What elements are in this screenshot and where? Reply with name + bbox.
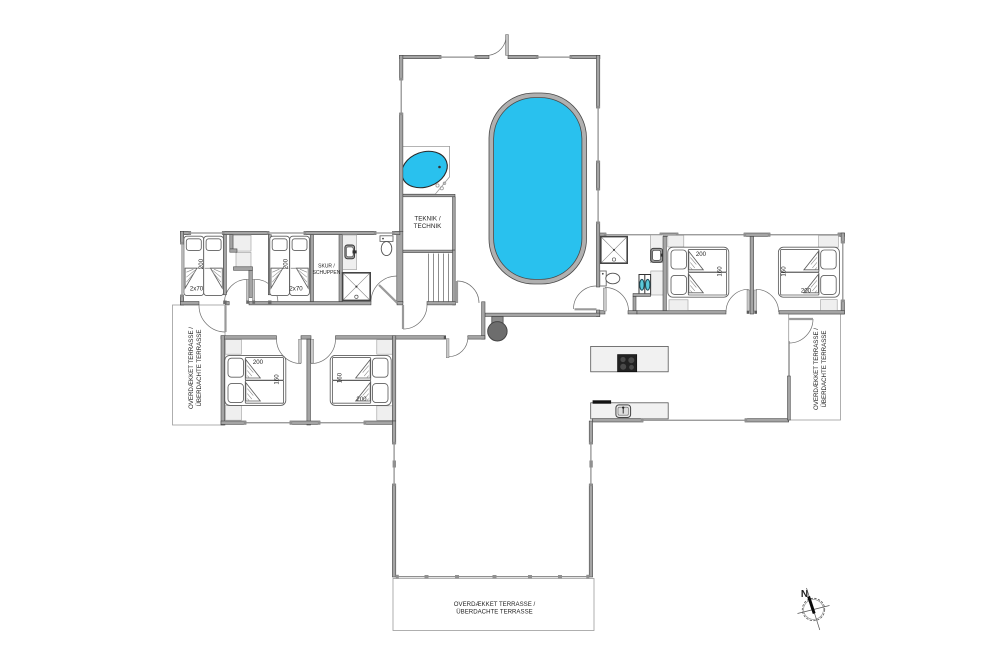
svg-text:200: 200 — [696, 251, 707, 258]
svg-text:TEKNIK /TECHNIK: TEKNIK /TECHNIK — [414, 216, 442, 231]
svg-text:OVERDÆKKET TERRASSE /ÜBERDACHT: OVERDÆKKET TERRASSE /ÜBERDACHTE TERRASSE — [188, 327, 203, 409]
svg-text:160: 160 — [337, 372, 344, 383]
svg-text:2x70: 2x70 — [190, 286, 204, 293]
svg-text:OVERDÆKKET TERRASSE /ÜBERDACHT: OVERDÆKKET TERRASSE /ÜBERDACHTE TERRASSE — [454, 601, 536, 615]
svg-text:200: 200 — [283, 258, 290, 269]
svg-text:160: 160 — [780, 266, 787, 277]
svg-text:OVERDÆKKET TERRASSE /ÜBERDACHT: OVERDÆKKET TERRASSE /ÜBERDACHTE TERRASSE — [813, 328, 828, 410]
svg-text:200: 200 — [198, 258, 205, 269]
svg-text:200: 200 — [253, 359, 264, 366]
svg-text:N: N — [801, 589, 808, 600]
svg-text:2x70: 2x70 — [289, 286, 303, 293]
svg-text:160: 160 — [717, 266, 724, 277]
svg-text:200: 200 — [801, 288, 812, 295]
svg-text:160: 160 — [274, 374, 281, 385]
svg-text:200: 200 — [356, 396, 367, 403]
